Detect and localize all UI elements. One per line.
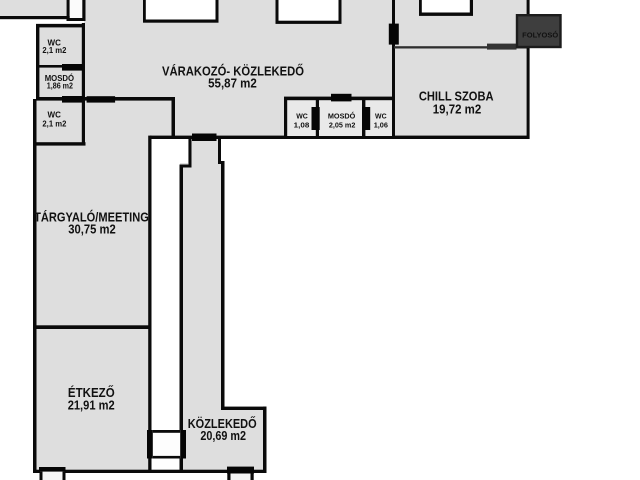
svg-text:2,05 m2: 2,05 m2 [329,121,356,130]
svg-text:MOSDÓ: MOSDÓ [328,111,356,120]
svg-text:20,69 m2: 20,69 m2 [200,429,246,443]
svg-text:CHILL SZOBA: CHILL SZOBA [419,89,494,103]
svg-text:FOLYOSÓ: FOLYOSÓ [522,31,559,40]
svg-text:WC: WC [296,111,308,120]
svg-text:1,08: 1,08 [294,121,310,130]
svg-text:WC: WC [48,111,62,120]
svg-text:WC: WC [375,111,387,120]
svg-text:21,91 m2: 21,91 m2 [68,398,115,412]
svg-text:1,86 m2: 1,86 m2 [47,82,74,91]
svg-text:19,72 m2: 19,72 m2 [433,103,481,117]
svg-text:55,87 m2: 55,87 m2 [208,77,257,91]
svg-text:2,1 m2: 2,1 m2 [42,46,67,55]
svg-text:1,06: 1,06 [374,121,388,130]
svg-text:2,1 m2: 2,1 m2 [42,120,67,129]
svg-text:30,75 m2: 30,75 m2 [68,222,116,236]
